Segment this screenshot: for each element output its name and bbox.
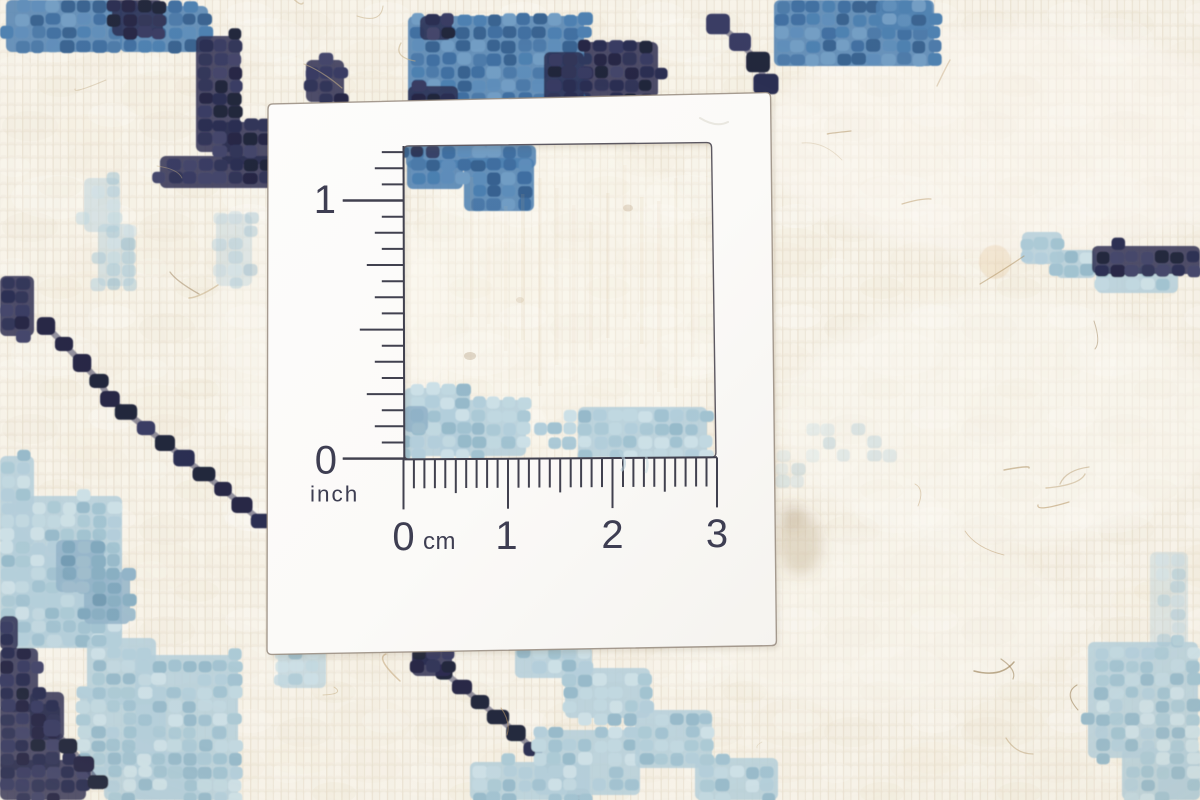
svg-text:1: 1: [314, 178, 336, 222]
svg-text:3: 3: [706, 512, 728, 556]
svg-text:0: 0: [392, 515, 414, 559]
svg-text:0: 0: [315, 439, 337, 483]
svg-text:2: 2: [601, 513, 623, 557]
svg-text:inch: inch: [310, 482, 359, 507]
svg-text:cm: cm: [423, 528, 456, 555]
svg-text:1: 1: [495, 514, 517, 558]
